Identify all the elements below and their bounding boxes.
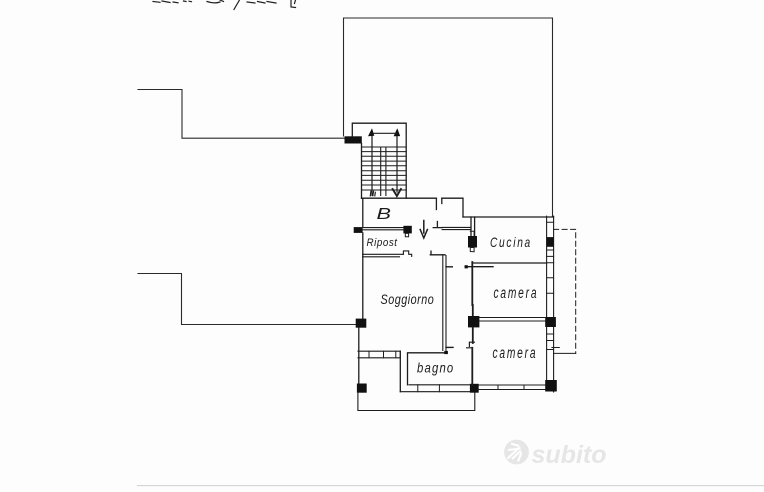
svg-text:subito: subito	[532, 441, 607, 469]
svg-text:B: B	[377, 206, 391, 223]
svg-text:camera: camera	[494, 284, 539, 302]
svg-text:Ripost: Ripost	[367, 236, 398, 249]
svg-text:camera: camera	[493, 344, 538, 362]
svg-text:Soggiorno: Soggiorno	[381, 292, 435, 307]
svg-text:Cucina: Cucina	[490, 234, 532, 250]
svg-text:bagno: bagno	[417, 359, 454, 376]
